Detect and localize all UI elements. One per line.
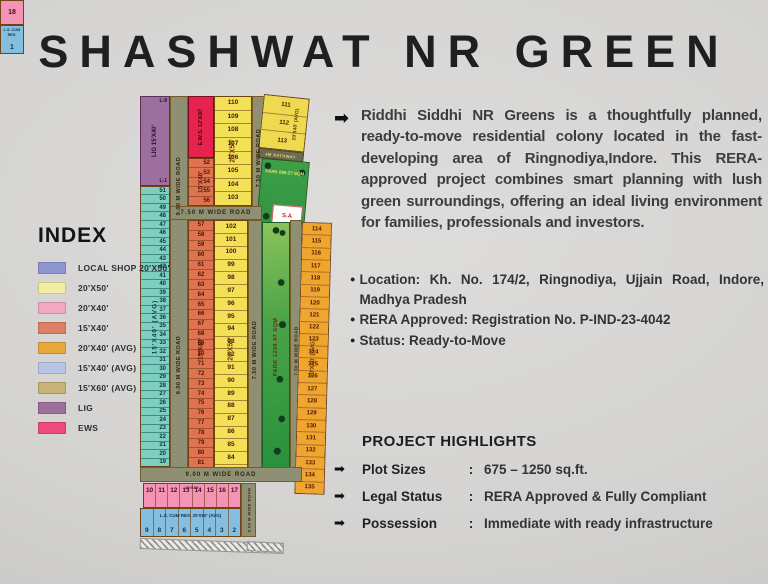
lig-top-label: L-8 xyxy=(160,98,168,104)
highlight-label: Plot Sizes xyxy=(362,462,458,477)
plot-66: 66 xyxy=(189,309,213,319)
legend-label: LOCAL SHOP 20'X50' xyxy=(78,263,170,273)
plot-94: 94 xyxy=(215,323,247,336)
bullet-icon: ● xyxy=(350,335,355,351)
plot-53: 53 xyxy=(189,167,213,176)
plot-127: 127 xyxy=(298,382,326,395)
plot-61: 61 xyxy=(189,260,213,270)
plot-15: 15 xyxy=(204,484,216,507)
plot-56: 56 xyxy=(189,196,213,205)
block-114-135: 20'X40' (AVG) 11411511611711811912012112… xyxy=(294,222,332,495)
plot-87: 87 xyxy=(215,413,247,426)
plot-column-111-113: 20'X40' (AVG) 111112113 xyxy=(258,94,309,153)
plot-98: 98 xyxy=(215,271,247,284)
plot-64: 64 xyxy=(189,289,213,299)
plot-103: 103 xyxy=(215,191,251,205)
plot-62: 62 xyxy=(189,269,213,279)
plot-11: 11 xyxy=(155,484,167,507)
plot-129: 129 xyxy=(297,407,325,420)
park-label: PARK 699.27 SQM xyxy=(262,168,308,179)
plot-84: 84 xyxy=(215,451,247,464)
plot-124: 124 xyxy=(299,345,327,358)
plot-123: 123 xyxy=(300,333,328,346)
plot-69: 69 xyxy=(189,339,213,349)
plot-104: 104 xyxy=(215,178,251,192)
index-item: 15'X40' (AVG) xyxy=(38,358,170,378)
plot-78: 78 xyxy=(189,428,213,438)
plot-115: 115 xyxy=(302,234,330,247)
plot-60: 60 xyxy=(189,250,213,260)
ews-size-label: E.W.S. 12'X30' xyxy=(198,109,204,146)
plot-8: 8 xyxy=(153,509,166,536)
plot-92: 92 xyxy=(215,348,247,361)
legend-swatch xyxy=(38,262,66,274)
plot-58: 58 xyxy=(189,230,213,240)
plot-117: 117 xyxy=(302,259,330,272)
index-item: EWS xyxy=(38,418,170,438)
highlight-row: ➡ Plot Sizes : 675 – 1250 sq.ft. xyxy=(334,456,764,483)
plot-48: 48 xyxy=(141,211,169,219)
project-description: Riddhi Siddhi NR Greens is a thoughtfull… xyxy=(361,105,762,234)
plot-99: 99 xyxy=(215,259,247,272)
lig-block: L-8 LIG 15'X40' L-1 xyxy=(140,96,170,186)
plot-120: 120 xyxy=(301,296,329,309)
plot-91: 91 xyxy=(215,361,247,374)
highlight-value: Immediate with ready infrastructure xyxy=(484,516,713,531)
plot-105: 105 xyxy=(215,164,251,178)
road-label: 9.00 M WIDE ROAD xyxy=(141,468,301,481)
road-label: 9.00 M WIDE ROAD xyxy=(246,488,251,533)
plot-88: 88 xyxy=(215,400,247,413)
plot-3: 3 xyxy=(215,509,228,536)
plot-85: 85 xyxy=(215,438,247,451)
legend-swatch xyxy=(38,382,66,394)
index-item: 15'X40' xyxy=(38,318,170,338)
plot-118: 118 xyxy=(301,271,329,284)
colon: : xyxy=(458,462,484,477)
lig-bottom-label: L-1 xyxy=(160,178,168,184)
road-7m-vertical-mid: 7.50 M WIDE ROAD xyxy=(248,220,262,480)
legend-swatch xyxy=(38,282,66,294)
road-7m-horizontal: 7.50 M WIDE ROAD xyxy=(170,206,262,220)
plot-75: 75 xyxy=(189,398,213,408)
plot-65: 65 xyxy=(189,299,213,309)
plot-7: 7 xyxy=(165,509,178,536)
plot-19: 19 xyxy=(141,458,169,466)
index-item: 20'X40' (AVG) xyxy=(38,338,170,358)
legend-label: 20'X50' xyxy=(78,283,109,293)
legend-label: LIG xyxy=(78,403,93,413)
fact-item: ● Location: Kh. No. 174/2, Ringnodiya, U… xyxy=(350,270,764,309)
index-legend: INDEX LOCAL SHOP 20'X50'20'X50'20'X40'15… xyxy=(38,224,170,438)
legend-swatch xyxy=(38,302,66,314)
plot-72: 72 xyxy=(189,368,213,378)
plot-95: 95 xyxy=(215,310,247,323)
park-label: PARK 1298.47 SQM xyxy=(273,318,279,377)
plot-4: 4 xyxy=(203,509,216,536)
plot-107: 107 xyxy=(215,137,251,151)
index-item: 15'X60' (AVG) xyxy=(38,378,170,398)
fact-text: Status: Ready-to-Move xyxy=(359,331,505,351)
plot-135: 135 xyxy=(295,480,323,493)
plot-77: 77 xyxy=(189,418,213,428)
plot-126: 126 xyxy=(299,370,327,383)
arrow-icon: ➡ xyxy=(334,516,362,531)
legend-label: 15'X60' (AVG) xyxy=(78,383,136,393)
colon: : xyxy=(458,516,484,531)
plot-13: 13 xyxy=(179,484,191,507)
index-item: LOCAL SHOP 20'X50' xyxy=(38,258,170,278)
highlight-value: 675 – 1250 sq.ft. xyxy=(484,462,588,477)
index-item: LIG xyxy=(38,398,170,418)
plot-14: 14 xyxy=(192,484,204,507)
legend-rows: LOCAL SHOP 20'X50'20'X50'20'X40'15'X40'2… xyxy=(38,258,170,438)
plot-86: 86 xyxy=(215,426,247,439)
road-9m-vertical: 9.00 M WIDE ROAD 9.00 M WIDE ROAD xyxy=(170,96,188,470)
plot-130: 130 xyxy=(297,419,325,432)
shop-res-label: L.S. CUM RES. xyxy=(1,28,23,39)
plot-55: 55 xyxy=(189,186,213,195)
plot-90: 90 xyxy=(215,374,247,387)
plot-97: 97 xyxy=(215,284,247,297)
plot-100: 100 xyxy=(215,246,247,259)
plot-73: 73 xyxy=(189,378,213,388)
plot-21: 21 xyxy=(141,441,169,449)
legend-swatch xyxy=(38,322,66,334)
plot-row-9-2: L.S. CUM RES. 20'X50' (AVG) 98765432 xyxy=(140,508,241,537)
plot-17: 17 xyxy=(228,484,240,507)
plot-76: 76 xyxy=(189,408,213,418)
plot-110: 110 xyxy=(215,97,251,110)
plot-number: 1 xyxy=(10,44,14,51)
highlight-label: Possession xyxy=(362,516,458,531)
plot-108: 108 xyxy=(215,123,251,137)
plot-54: 54 xyxy=(189,177,213,186)
plot-59: 59 xyxy=(189,240,213,250)
bullet-icon: ● xyxy=(350,274,355,309)
plot-63: 63 xyxy=(189,279,213,289)
highlight-row: ➡ Possession : Immediate with ready infr… xyxy=(334,510,764,537)
plot-49: 49 xyxy=(141,203,169,211)
highlights-list: ➡ Plot Sizes : 675 – 1250 sq.ft. ➡ Legal… xyxy=(334,456,764,537)
plot-column-114-135: 20'X40' (AVG) 11411511611711811912012112… xyxy=(294,222,332,495)
legend-swatch xyxy=(38,342,66,354)
fact-text: Location: Kh. No. 174/2, Ringnodiya, Ujj… xyxy=(359,270,764,309)
plot-column-52-56: 15'X40' 5253545556 xyxy=(188,158,214,206)
plot-102: 102 xyxy=(215,221,247,233)
plot-column-110-103: 20'X50' 110109108107106105104103 xyxy=(214,96,252,206)
plot-80: 80 xyxy=(189,447,213,457)
fact-item: ● RERA Approved: Registration No. P-IND-… xyxy=(350,310,764,330)
legend-label: 15'X40' (AVG) xyxy=(78,363,136,373)
plot-row-10-17: 20'X40' 1011121314151617 xyxy=(143,483,241,508)
plot-9: 9 xyxy=(141,509,153,536)
plot-81: 81 xyxy=(189,457,213,467)
legend-label: EWS xyxy=(78,423,98,433)
plot-93: 93 xyxy=(215,336,247,349)
plot-74: 74 xyxy=(189,388,213,398)
plot-1: L.S. CUM RES. 1 xyxy=(0,25,24,54)
plot-50: 50 xyxy=(141,194,169,202)
legend-swatch xyxy=(38,402,66,414)
plot-70: 70 xyxy=(189,349,213,359)
arrow-icon: ➡ xyxy=(334,489,362,504)
plot-10: 10 xyxy=(144,484,155,507)
plot-79: 79 xyxy=(189,438,213,448)
plot-121: 121 xyxy=(300,308,328,321)
fact-item: ● Status: Ready-to-Move xyxy=(350,331,764,351)
plot-131: 131 xyxy=(297,431,325,444)
index-item: 20'X40' xyxy=(38,298,170,318)
legend-label: 20'X40' (AVG) xyxy=(78,343,136,353)
road-label: 7.50 M WIDE ROAD xyxy=(171,207,261,219)
plot-18: 18 xyxy=(0,0,24,25)
plot-52: 52 xyxy=(189,159,213,167)
plot-57: 57 xyxy=(189,221,213,230)
highlight-row: ➡ Legal Status : RERA Approved & Fully C… xyxy=(334,483,764,510)
plot-2: 2 xyxy=(228,509,241,536)
plot-6: 6 xyxy=(178,509,191,536)
plot-119: 119 xyxy=(301,284,329,297)
block-111-113: 20'X40' (AVG) 111112113 4M PATHWAY xyxy=(257,94,309,162)
boundary-hatch xyxy=(246,541,283,553)
plot-96: 96 xyxy=(215,297,247,310)
road-label: 9.00 M WIDE ROAD xyxy=(176,336,182,394)
plot-71: 71 xyxy=(189,358,213,368)
plot-125: 125 xyxy=(299,357,327,370)
legend-swatch xyxy=(38,362,66,374)
plot-89: 89 xyxy=(215,387,247,400)
fact-text: RERA Approved: Registration No. P-IND-23… xyxy=(359,310,670,330)
bullet-icon: ● xyxy=(350,314,355,330)
plot-114: 114 xyxy=(303,223,331,235)
plot-column-102-83: 20'X50' 10210110099989796959493929190898… xyxy=(214,220,248,478)
plot-106: 106 xyxy=(215,151,251,165)
brochure-page: SHASHWAT NR GREEN L-8 LIG 15'X40' L-1 15… xyxy=(0,0,768,584)
plot-128: 128 xyxy=(298,394,326,407)
highlight-value: RERA Approved & Fully Compliant xyxy=(484,489,707,504)
plot-5: 5 xyxy=(190,509,203,536)
plot-67: 67 xyxy=(189,319,213,329)
road-label: 7.50 M WIDE ROAD xyxy=(252,321,258,379)
road-9m-vertical-bottom: 9.00 M WIDE ROAD xyxy=(241,483,256,537)
plot-12: 12 xyxy=(167,484,179,507)
lig-size-label: LIG 15'X40' xyxy=(152,125,158,157)
plot-20: 20 xyxy=(141,449,169,457)
plot-68: 68 xyxy=(189,329,213,339)
road-9m-horizontal-bottom: 9.00 M WIDE ROAD xyxy=(140,467,302,482)
legend-swatch xyxy=(38,422,66,434)
index-heading: INDEX xyxy=(38,224,170,248)
arrow-icon: ➡ xyxy=(334,108,349,129)
plot-51: 51 xyxy=(141,187,169,194)
plot-16: 16 xyxy=(216,484,228,507)
index-item: 20'X50' xyxy=(38,278,170,298)
fact-list: ● Location: Kh. No. 174/2, Ringnodiya, U… xyxy=(350,270,764,352)
plot-122: 122 xyxy=(300,320,328,333)
legend-label: 15'X40' xyxy=(78,323,109,333)
ews-block: E.W.S. 12'X30' xyxy=(188,96,214,158)
park-central: PARK 1298.47 SQM xyxy=(262,222,290,472)
plot-116: 116 xyxy=(302,247,330,260)
colon: : xyxy=(458,489,484,504)
plot-101: 101 xyxy=(215,233,247,246)
highlights-heading: PROJECT HIGHLIGHTS xyxy=(362,433,537,450)
plot-column-57-82: 15'X40' 57585960616263646566676869707172… xyxy=(188,220,214,478)
arrow-icon: ➡ xyxy=(334,462,362,477)
legend-label: 20'X40' xyxy=(78,303,109,313)
plot-132: 132 xyxy=(296,444,324,457)
highlight-label: Legal Status xyxy=(362,489,458,504)
plot-109: 109 xyxy=(215,110,251,124)
